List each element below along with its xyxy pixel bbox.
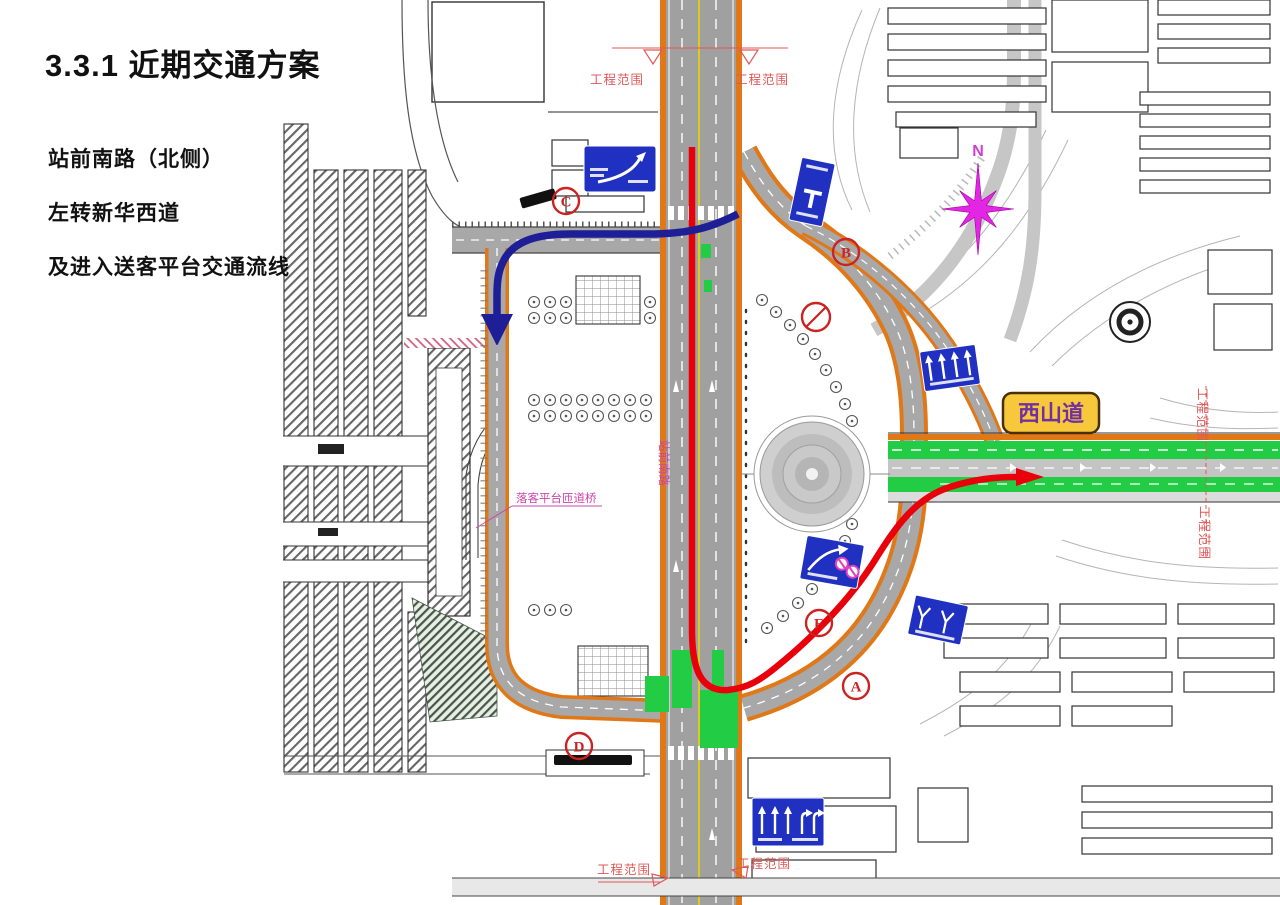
marker-A: A <box>843 673 869 699</box>
guide-sign-t-junction <box>789 157 836 227</box>
tree-grid <box>576 276 640 324</box>
xinhua-west-road <box>452 224 668 253</box>
scope-label: 工程范围 <box>1195 388 1210 442</box>
circular-feature <box>1110 302 1150 342</box>
description-line: 左转新华西道 <box>48 202 290 226</box>
central-plaza <box>742 416 890 532</box>
marker-no-entry <box>802 303 830 331</box>
station-access-roads <box>283 436 660 774</box>
marker-D: D <box>566 733 592 759</box>
tree-grid <box>578 646 648 696</box>
description-line: 及进入送客平台交通流线 <box>48 256 290 280</box>
zhanqian-south-road-surface <box>660 0 742 905</box>
scope-label: 工程范围 <box>590 72 644 87</box>
scope-label: 工程范围 <box>735 72 789 87</box>
guide-sign-no-entry <box>800 535 865 588</box>
scope-label: 工程范围 <box>597 862 651 877</box>
page-title: 3.3.1 近期交通方案 <box>45 40 321 85</box>
svg-text:E: E <box>814 617 824 633</box>
ramp-bridge-label: 落客平台匝道桥 <box>516 491 597 505</box>
scope-label: 工程范围 <box>1197 506 1212 560</box>
road-name-vertical: 站前南路 <box>657 440 671 486</box>
scope-label: 工程范围 <box>737 856 791 871</box>
car-icon <box>519 188 557 208</box>
lane-sign-bottom <box>752 798 825 846</box>
slide: N <box>0 0 1280 905</box>
svg-text:C: C <box>561 195 572 211</box>
bottom-road <box>452 878 1280 896</box>
svg-text:A: A <box>851 680 862 696</box>
svg-text:D: D <box>574 740 585 756</box>
guide-sign-branch <box>907 595 968 645</box>
guide-sign-left-turn <box>584 146 656 192</box>
traffic-plan-map: N <box>0 0 1280 905</box>
building-block <box>748 604 1274 882</box>
description-block: 站前南路（北侧） 左转新华西道 及进入送客平台交通流线 <box>48 148 290 310</box>
xishan-road <box>888 433 1280 502</box>
lane-sign-four-arrows <box>919 344 980 391</box>
description-line: 站前南路（北侧） <box>48 148 290 172</box>
north-label: N <box>972 143 984 160</box>
svg-text:B: B <box>841 246 851 262</box>
xishan-road-label: 西山道 <box>1003 393 1099 433</box>
xishan-road-text: 西山道 <box>1018 401 1084 426</box>
